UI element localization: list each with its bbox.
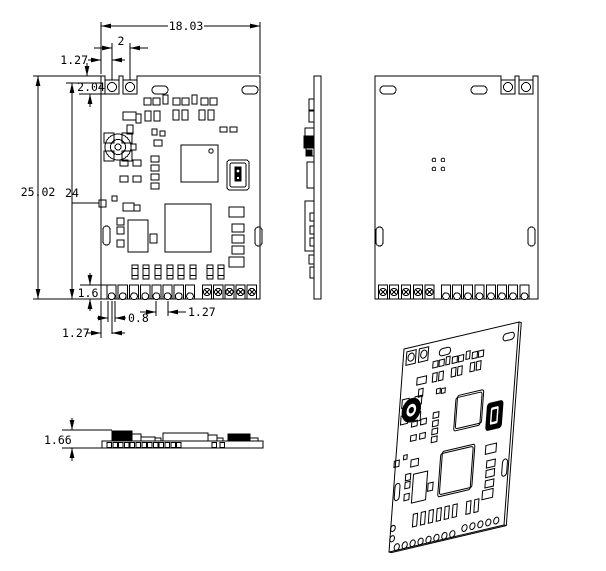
iso-connector	[486, 400, 504, 431]
iso-ic-small	[411, 471, 427, 503]
iso-ic-upper	[454, 389, 484, 431]
dim-hole-pitch: 2	[118, 34, 125, 48]
front-smd-upper	[123, 95, 237, 146]
drawing-canvas: 18.03 2 1.27 2.04 25.02 24 1.6 1.27 0.8 …	[0, 0, 606, 571]
front-bottom-pins	[107, 285, 256, 300]
iso-smd-right	[482, 443, 497, 500]
back-edge-slot-right	[528, 227, 535, 246]
dim-pin-offset: 1.27	[62, 326, 90, 340]
dim-pad-depth: 2.04	[77, 80, 105, 94]
dim-board-width: 18.03	[169, 19, 204, 33]
front-smd-right	[229, 207, 244, 267]
back-view	[375, 76, 538, 300]
front-ic-upper	[181, 145, 218, 182]
iso-ic-main	[438, 444, 475, 497]
dim-board-height: 25.02	[21, 185, 56, 199]
dim-pad-height: 1.6	[78, 286, 99, 300]
side-board	[314, 76, 321, 299]
dim-pin-width: 0.8	[128, 311, 149, 325]
front-smd-mid	[112, 156, 159, 247]
front-edge-slot-right	[255, 227, 262, 246]
back-bottom-pins	[378, 285, 529, 300]
front-ic-small	[128, 220, 148, 252]
profile-components	[112, 431, 258, 441]
front-resistor-row	[132, 265, 224, 279]
pcb-technical-drawing: 18.03 2 1.27 2.04 25.02 24 1.6 1.27 0.8 …	[0, 0, 606, 571]
back-edge-slot-left	[376, 227, 383, 246]
back-slot-right	[471, 86, 487, 94]
front-view	[99, 76, 262, 300]
iso-3d-view	[388, 321, 522, 553]
dim-thickness: 1.66	[44, 433, 72, 447]
back-top-pads	[501, 80, 533, 94]
front-ic-main	[165, 204, 211, 252]
profile-view	[102, 431, 263, 448]
iso-resistor-row	[412, 499, 479, 527]
front-edge-slot-left	[103, 226, 110, 245]
front-slot-left	[152, 86, 168, 94]
dimension-lines	[33, 22, 260, 461]
profile-edge-pads	[107, 443, 225, 448]
side-components	[304, 99, 314, 278]
front-connector	[227, 160, 249, 190]
back-board-outline	[375, 76, 538, 299]
side-view	[304, 76, 321, 299]
back-vias	[432, 158, 445, 171]
front-top-pads	[105, 80, 137, 94]
antenna-connector	[104, 133, 136, 161]
datum-mark	[99, 200, 106, 207]
dim-pin-pitch: 1.27	[188, 305, 216, 319]
dim-hole-offset: 1.27	[60, 53, 88, 67]
iso-antenna-connector	[400, 395, 421, 425]
back-slot-left	[380, 86, 396, 94]
dim-hole-to-bottom: 24	[65, 186, 79, 200]
front-slot-right	[242, 86, 258, 94]
